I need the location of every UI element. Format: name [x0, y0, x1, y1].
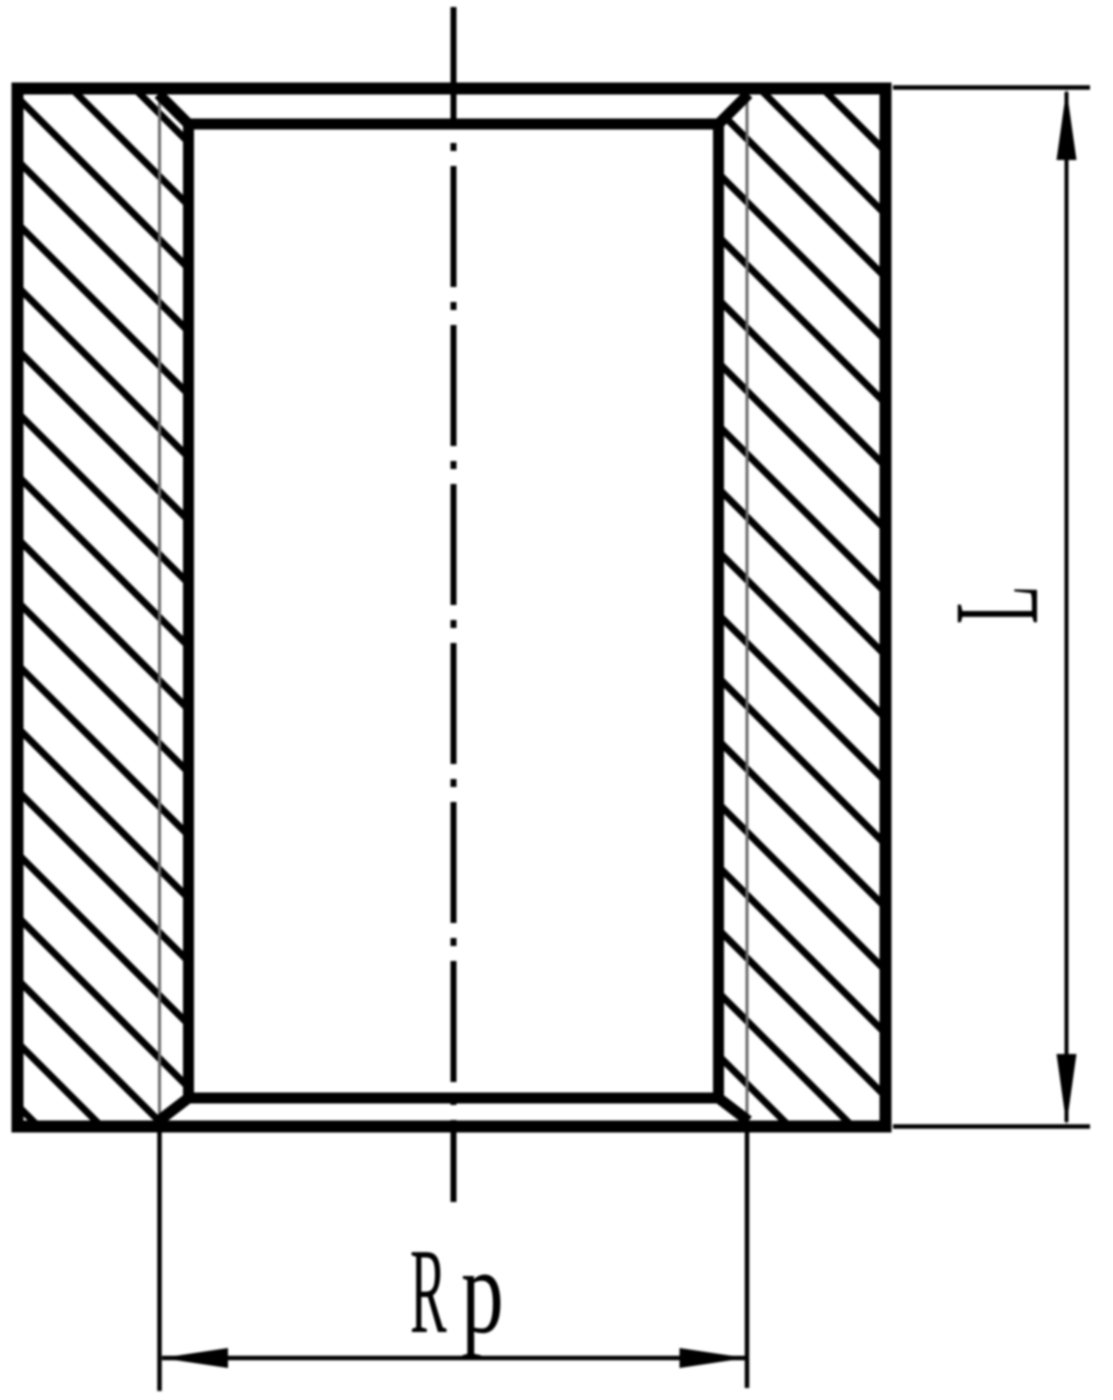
svg-text:L: L — [929, 586, 1063, 624]
svg-text:R: R — [410, 1225, 447, 1359]
svg-text:p: p — [461, 1223, 504, 1359]
